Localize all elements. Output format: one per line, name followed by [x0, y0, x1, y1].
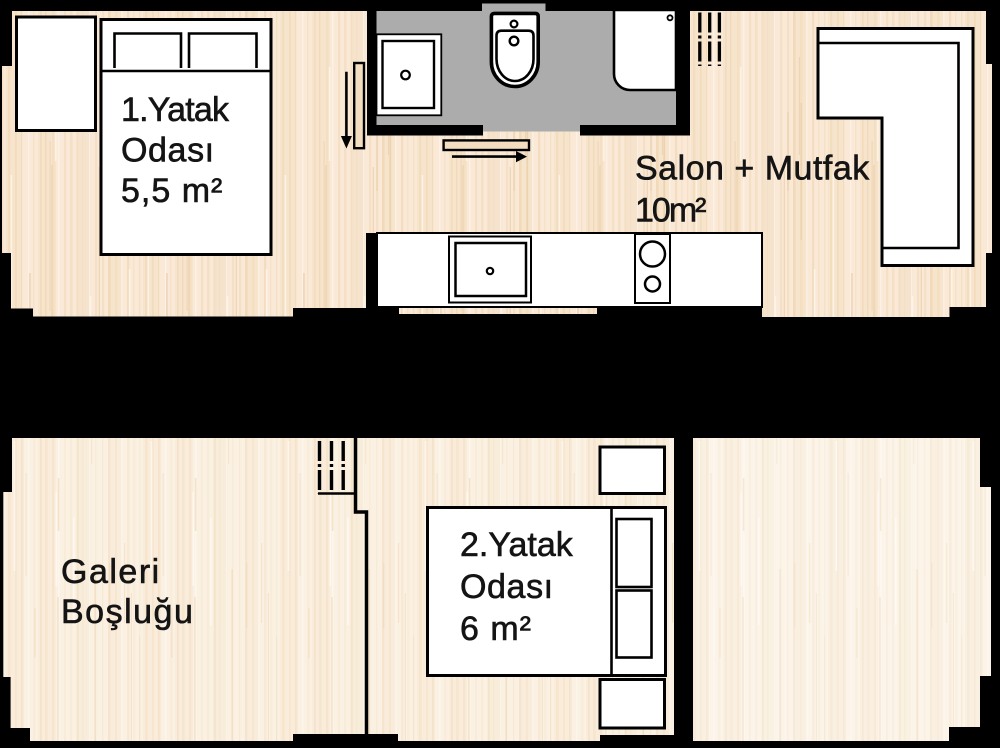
svg-text:6 m²: 6 m²	[460, 610, 532, 648]
svg-text:Galeri: Galeri	[61, 553, 161, 591]
svg-text:1.Yatak: 1.Yatak	[121, 91, 230, 129]
svg-text:Odası: Odası	[121, 132, 215, 170]
svg-text:5,5 m²: 5,5 m²	[121, 172, 223, 210]
svg-text:10m²: 10m²	[635, 192, 706, 230]
svg-text:Salon + Mutfak: Salon + Mutfak	[635, 150, 870, 188]
svg-text:2.Yatak: 2.Yatak	[460, 526, 574, 564]
svg-text:Odası: Odası	[460, 568, 554, 606]
svg-text:Boşluğu: Boşluğu	[61, 593, 194, 631]
